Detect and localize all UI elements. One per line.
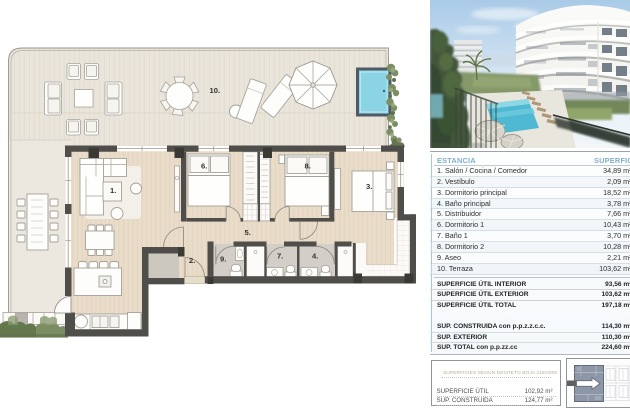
svg-text:4.: 4. [312,252,318,261]
svg-text:1.: 1. [110,186,116,195]
svg-text:3.: 3. [366,182,372,191]
svg-text:10.: 10. [210,86,221,95]
svg-text:2.: 2. [189,256,195,265]
svg-text:5.: 5. [245,228,251,237]
svg-text:6.: 6. [201,162,207,171]
svg-text:7.: 7. [277,252,283,261]
svg-text:8.: 8. [305,162,311,171]
svg-text:9.: 9. [220,255,226,264]
